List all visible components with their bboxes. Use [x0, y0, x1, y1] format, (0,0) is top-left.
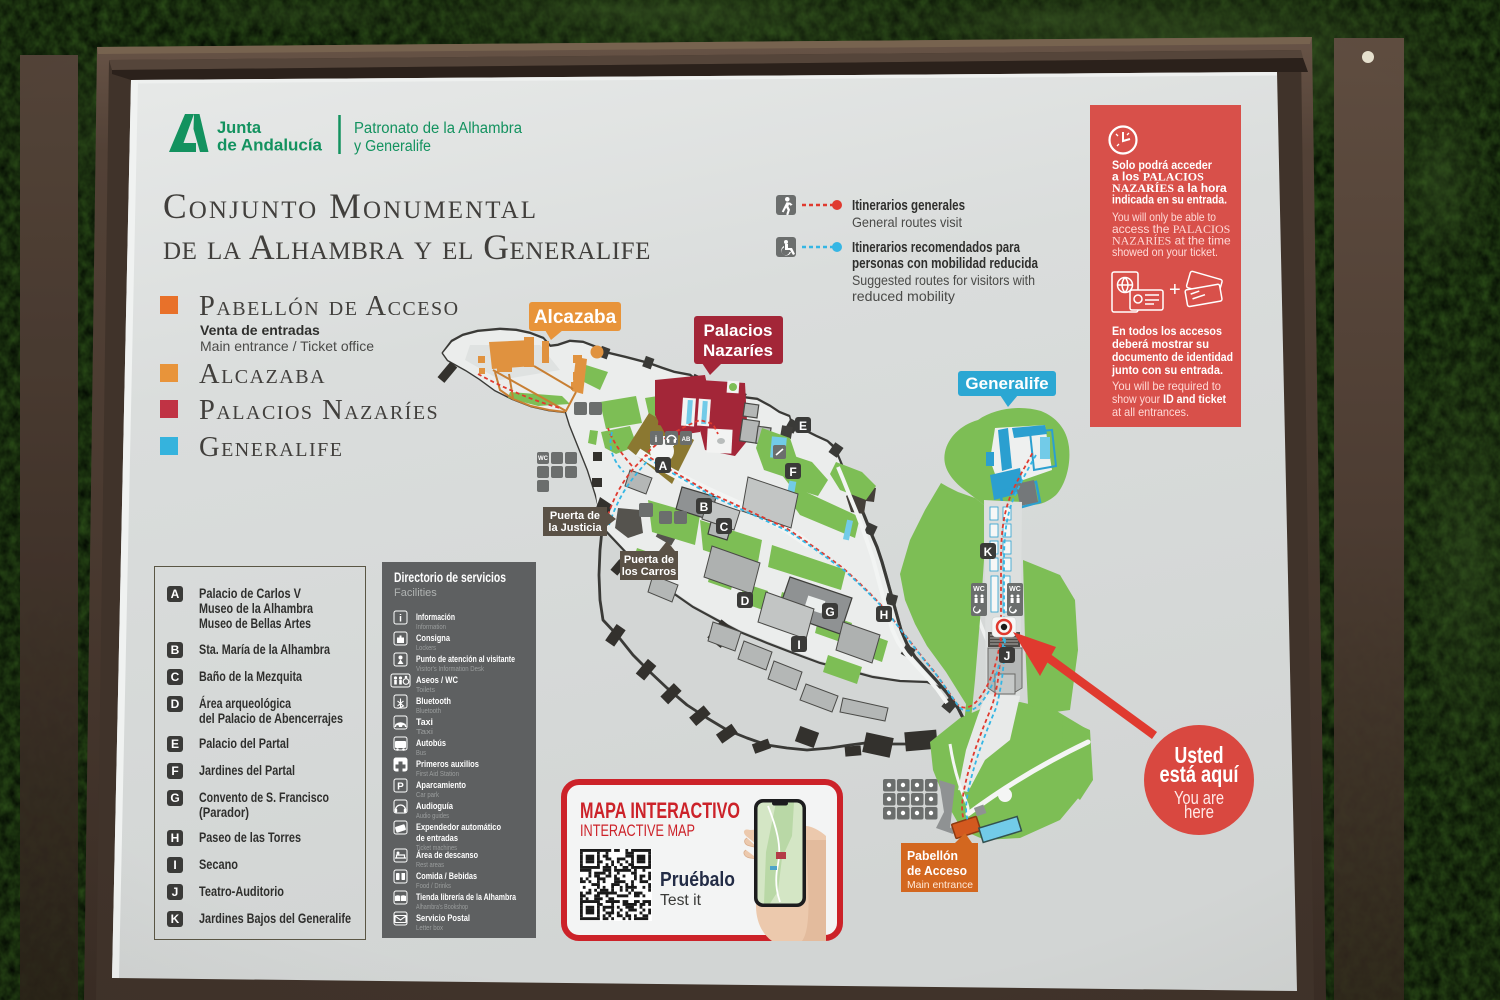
svg-text:Directorio de servicios: Directorio de servicios — [394, 569, 506, 585]
svg-text:E: E — [171, 737, 179, 751]
svg-text:at all entrances.: at all entrances. — [1112, 405, 1189, 419]
svg-text:Jardines Bajos del Generalife: Jardines Bajos del Generalife — [199, 911, 351, 926]
svg-text:A: A — [171, 587, 180, 601]
svg-text:H: H — [880, 608, 889, 622]
svg-text:Letter box: Letter box — [416, 923, 443, 932]
svg-text:Ticket machines: Ticket machines — [416, 843, 457, 852]
svg-text:Car park: Car park — [416, 790, 439, 799]
svg-text:Autobús: Autobús — [416, 738, 446, 748]
svg-text:B: B — [171, 643, 180, 657]
svg-text:y Generalife: y Generalife — [354, 138, 431, 155]
svg-text:First Aid Station: First Aid Station — [416, 769, 459, 778]
svg-text:Palacio del Partal: Palacio del Partal — [199, 736, 289, 751]
svg-text:F: F — [789, 465, 796, 479]
svg-text:Rest areas: Rest areas — [416, 860, 444, 869]
svg-text:Aparcamiento: Aparcamiento — [416, 780, 466, 790]
svg-text:F: F — [171, 764, 178, 778]
svg-text:Pruébalo: Pruébalo — [660, 869, 735, 891]
svg-text:Bus: Bus — [416, 748, 426, 757]
svg-text:Museo de la Alhambra: Museo de la Alhambra — [199, 601, 313, 616]
svg-text:Alcazaba: Alcazaba — [534, 307, 617, 328]
svg-text:(Parador): (Parador) — [199, 805, 249, 820]
svg-text:Information: Information — [416, 622, 446, 631]
svg-text:J: J — [172, 885, 179, 899]
svg-text:Primeros auxilios: Primeros auxilios — [416, 759, 479, 769]
svg-text:Secano: Secano — [199, 857, 238, 872]
svg-text:Visitor's Information Desk: Visitor's Information Desk — [416, 664, 484, 673]
svg-text:Audioguía: Audioguía — [416, 801, 454, 811]
svg-text:G: G — [170, 791, 179, 805]
svg-text:Consigna: Consigna — [416, 633, 451, 643]
svg-text:B: B — [700, 500, 709, 514]
svg-text:Lockers: Lockers — [416, 643, 436, 652]
svg-text:A: A — [659, 459, 668, 473]
svg-text:Facilities: Facilities — [394, 587, 437, 599]
svg-text:Jardines del Partal: Jardines del Partal — [199, 763, 295, 778]
svg-text:Patronato de la Alhambra: Patronato de la Alhambra — [354, 120, 522, 137]
svg-text:G: G — [825, 605, 834, 619]
svg-text:Convento de S. Francisco: Convento de S. Francisco — [199, 790, 329, 805]
svg-text:K: K — [171, 912, 180, 926]
svg-text:deberá mostrar su: deberá mostrar su — [1112, 337, 1209, 351]
svg-text:i: i — [655, 434, 658, 444]
svg-text:Sta. María de la Alhambra: Sta. María de la Alhambra — [199, 642, 330, 657]
svg-text:D: D — [741, 594, 750, 608]
svg-text:Puerta de: Puerta de — [624, 554, 674, 566]
svg-text:Itinerarios recomendados para: Itinerarios recomendados para — [852, 239, 1020, 256]
svg-text:C: C — [720, 520, 729, 534]
svg-text:Main entrance: Main entrance — [907, 879, 973, 891]
svg-text:Generalife: Generalife — [965, 374, 1048, 393]
svg-text:Palacios: Palacios — [704, 321, 773, 340]
svg-text:Itinerarios generales: Itinerarios generales — [852, 197, 965, 214]
svg-text:H: H — [171, 831, 180, 845]
svg-text:WC: WC — [1009, 586, 1021, 593]
svg-text:Taxi: Taxi — [416, 717, 433, 727]
svg-text:WC: WC — [973, 586, 985, 593]
svg-text:Aseos / WC: Aseos / WC — [416, 675, 458, 685]
svg-text:Información: Información — [416, 612, 455, 622]
svg-text:Expendedor automático: Expendedor automático — [416, 822, 501, 832]
svg-text:Comida / Bebidas: Comida / Bebidas — [416, 871, 477, 881]
svg-text:Palacio de Carlos V: Palacio de Carlos V — [199, 586, 301, 601]
svg-text:personas con mobilidad reducid: personas con mobilidad reducida — [852, 255, 1039, 272]
svg-text:Servicio Postal: Servicio Postal — [416, 913, 470, 923]
svg-text:está aquí: está aquí — [1160, 761, 1240, 787]
svg-text:indicada en su entrada.: indicada en su entrada. — [1112, 193, 1227, 207]
svg-text:los Carros: los Carros — [622, 566, 676, 578]
svg-text:Audio guides: Audio guides — [416, 811, 449, 820]
svg-text:I: I — [173, 858, 176, 872]
svg-text:Tienda librería de la Alhambra: Tienda librería de la Alhambra — [416, 892, 517, 902]
svg-text:+: + — [1169, 279, 1181, 301]
svg-text:Nazaríes: Nazaríes — [703, 341, 773, 360]
svg-text:Food / Drinks: Food / Drinks — [416, 881, 451, 890]
svg-text:showed on your ticket.: showed on your ticket. — [1112, 245, 1218, 259]
svg-text:Museo de Bellas Artes: Museo de Bellas Artes — [199, 616, 311, 631]
svg-text:reduced mobility: reduced mobility — [852, 288, 955, 304]
svg-text:documento de identidad: documento de identidad — [1112, 350, 1233, 364]
svg-text:Paseo de las Torres: Paseo de las Torres — [199, 830, 301, 845]
svg-text:de entradas: de entradas — [416, 833, 458, 843]
svg-text:AB: AB — [682, 437, 691, 443]
svg-text:Alhambra's Bookshop: Alhambra's Bookshop — [416, 902, 468, 911]
svg-text:here: here — [1184, 802, 1214, 822]
svg-text:del Palacio de Abencerrajes: del Palacio de Abencerrajes — [199, 711, 343, 726]
svg-text:Área arqueológica: Área arqueológica — [199, 696, 291, 711]
svg-text:J: J — [1004, 649, 1011, 663]
svg-text:Toilets: Toilets — [416, 685, 435, 694]
svg-text:de Andalucía: de Andalucía — [217, 137, 323, 155]
svg-text:MAPA INTERACTIVO: MAPA INTERACTIVO — [580, 798, 740, 823]
svg-text:INTERACTIVE MAP: INTERACTIVE MAP — [580, 822, 695, 840]
svg-text:K: K — [984, 545, 993, 559]
svg-text:i: i — [399, 614, 402, 625]
svg-text:Suggested routes for visitors: Suggested routes for visitors with — [852, 272, 1035, 288]
svg-text:Taxi: Taxi — [416, 727, 433, 736]
svg-text:Pabellón: Pabellón — [907, 849, 958, 863]
svg-text:C: C — [171, 670, 180, 684]
svg-text:de Acceso: de Acceso — [907, 864, 967, 878]
svg-text:Puerta de: Puerta de — [550, 510, 600, 522]
svg-text:P: P — [397, 782, 404, 793]
svg-text:D: D — [171, 697, 180, 711]
svg-text:E: E — [799, 419, 807, 433]
svg-text:Test it: Test it — [660, 892, 702, 909]
svg-text:show your ID and ticket: show your ID and ticket — [1112, 392, 1226, 406]
svg-text:Bluetooth: Bluetooth — [416, 696, 451, 706]
svg-text:junto con su entrada.: junto con su entrada. — [1111, 363, 1223, 377]
svg-text:Bluetooth: Bluetooth — [416, 706, 441, 715]
svg-text:WC: WC — [538, 456, 549, 462]
svg-text:Baño de la Mezquita: Baño de la Mezquita — [199, 669, 302, 684]
svg-text:la Justicia: la Justicia — [548, 522, 602, 534]
svg-text:I: I — [797, 638, 800, 652]
svg-text:Punto de atención al visitante: Punto de atención al visitante — [416, 654, 515, 664]
svg-text:You will be required to: You will be required to — [1112, 379, 1221, 393]
svg-text:General routes visit: General routes visit — [852, 214, 962, 230]
svg-text:Junta: Junta — [217, 119, 262, 137]
svg-text:Teatro-Auditorio: Teatro-Auditorio — [199, 884, 284, 899]
svg-text:En todos los accesos: En todos los accesos — [1112, 324, 1222, 338]
